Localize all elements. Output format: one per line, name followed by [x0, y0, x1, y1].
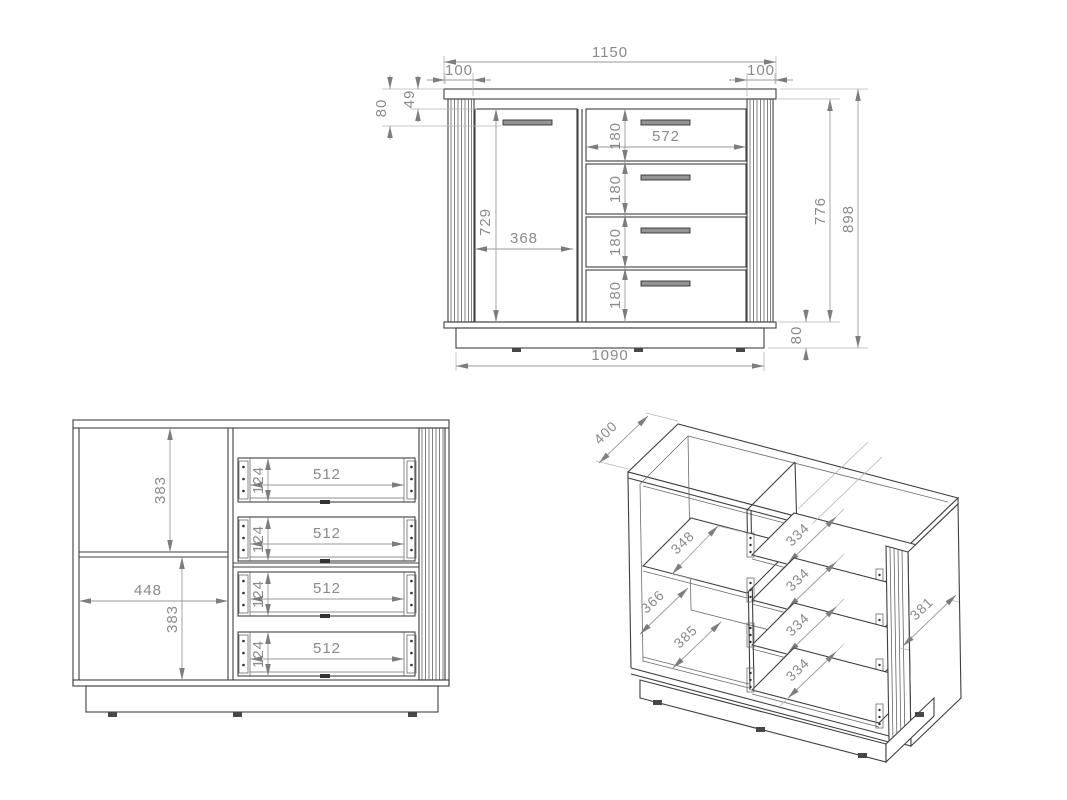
dim-drawer4-height: 124 — [250, 640, 267, 668]
dim-handle-offset: 80 — [373, 99, 390, 118]
dim-drawer-height-2: 180 — [607, 175, 624, 203]
dim-drawer-height-1: 180 — [607, 122, 624, 150]
top-panel — [444, 89, 776, 99]
plinth — [456, 328, 764, 348]
dim-drawer1-height: 124 — [250, 466, 267, 494]
dim-total-height: 898 — [840, 205, 857, 233]
drawer-box-2: 124 512 — [238, 517, 416, 563]
front-elevation-view: 1150 100 100 49 80 729 368 — [373, 44, 868, 371]
dim-body-height: 776 — [812, 197, 829, 225]
dim-lower-section: 383 — [164, 605, 181, 633]
center-divider — [228, 428, 233, 680]
dim-pilaster-left: 100 — [445, 62, 473, 79]
dim-plinth-width: 1090 — [591, 347, 628, 364]
right-pilaster — [747, 99, 773, 322]
drawer-handle-3 — [641, 228, 690, 233]
dim-upper-section: 383 — [152, 476, 169, 504]
left-shelf — [79, 552, 228, 557]
left-pilaster — [448, 99, 474, 322]
drawer-divider — [233, 563, 419, 567]
divider-edge — [578, 109, 582, 322]
top-panel — [73, 420, 449, 428]
dim-bottom-depth: 385 — [670, 621, 700, 651]
foot — [858, 753, 867, 758]
drawer-handle-2 — [641, 175, 690, 180]
drawer-box-1: 124 512 — [238, 458, 416, 504]
drawer-handle-4 — [641, 281, 690, 286]
foot — [108, 712, 117, 717]
bottom-panel — [73, 680, 449, 686]
internal-dimensions: 383 448 383 — [79, 428, 228, 680]
dim-drawer2-height: 124 — [250, 525, 267, 553]
internal-structure — [73, 420, 449, 717]
drawer-handle-1 — [641, 120, 690, 125]
bottom-panel — [444, 322, 776, 328]
dim-plinth-height: 80 — [788, 326, 805, 345]
internal-front-view: 124 512 124 512 124 512 — [73, 420, 449, 717]
foot — [408, 712, 417, 717]
foot — [736, 348, 745, 352]
dim-total-depth: 400 — [590, 417, 620, 447]
left-wall — [73, 428, 79, 686]
dim-drawer-height-4: 180 — [607, 281, 624, 309]
foot — [233, 712, 242, 717]
dim-pilaster-right: 100 — [747, 62, 775, 79]
dim-total-width: 1150 — [592, 44, 628, 61]
foot — [915, 712, 924, 717]
dim-drawer-height-3: 180 — [607, 228, 624, 256]
right-pilaster-flutes — [750, 99, 771, 322]
foot — [634, 348, 643, 352]
dim-drawer-front-width: 572 — [652, 128, 680, 145]
dim-drawer3-height: 124 — [250, 580, 267, 608]
technical-drawing-canvas: 1150 100 100 49 80 729 368 — [0, 0, 1067, 800]
drawer-box-3: 124 512 — [238, 572, 416, 618]
foot — [512, 348, 521, 352]
isometric-view: 334 334 334 334 — [590, 413, 961, 762]
drawer-box-4: 124 512 — [238, 632, 416, 678]
right-pilaster-flutes — [422, 428, 443, 680]
dim-drawer3-width: 512 — [313, 580, 341, 597]
right-pilaster — [419, 428, 445, 680]
door-handle — [503, 120, 552, 125]
dim-drawer4-width: 512 — [313, 640, 341, 657]
dim-top-offset: 49 — [401, 90, 418, 109]
dim-door-width: 368 — [510, 230, 538, 247]
left-pilaster-flutes — [451, 99, 472, 322]
foot — [756, 727, 765, 732]
dim-door-height: 729 — [477, 208, 494, 236]
dim-opening-width: 448 — [134, 582, 162, 599]
iso-left-front-edge — [628, 478, 631, 668]
plinth — [86, 686, 438, 712]
dim-drawer2-width: 512 — [313, 525, 341, 542]
foot — [653, 700, 662, 705]
dim-drawer1-width: 512 — [313, 466, 341, 483]
